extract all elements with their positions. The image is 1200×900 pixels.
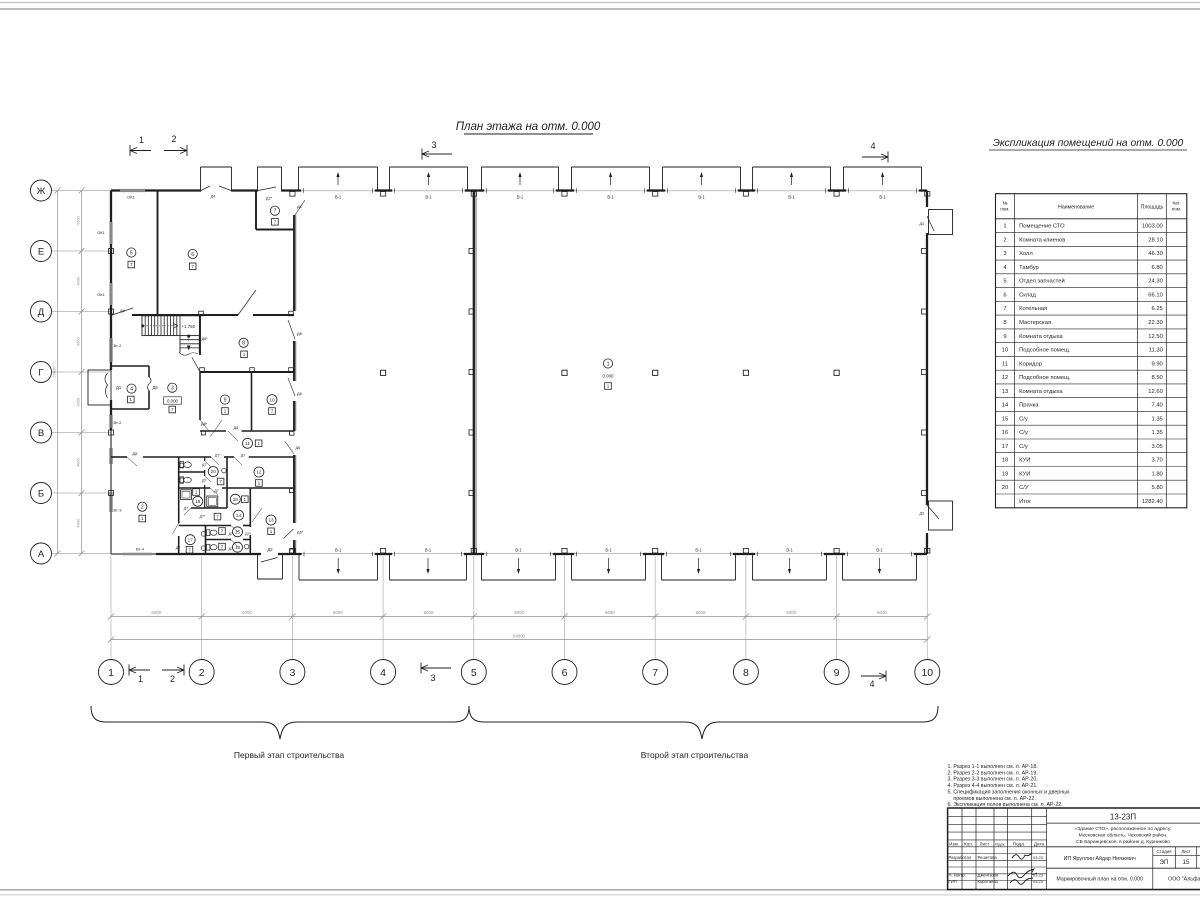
svg-text:54000: 54000	[513, 634, 526, 639]
svg-text:В-1: В-1	[879, 195, 886, 200]
svg-text:Комната отдыха: Комната отдыха	[1019, 334, 1063, 340]
svg-text:Д8: Д8	[133, 452, 138, 456]
svg-text:6. Экспликация полов выполнена: 6. Экспликация полов выполнена см. л. АР…	[948, 802, 1063, 808]
svg-text:Котельная: Котельная	[1019, 306, 1047, 312]
svg-text:4: 4	[869, 679, 874, 689]
svg-text:2: 2	[141, 505, 144, 511]
svg-text:Маркировочный план на отм. 0.0: Маркировочный план на отм. 0.000	[1056, 876, 1143, 883]
svg-text:17: 17	[188, 537, 194, 542]
svg-text:Д7: Д7	[214, 489, 218, 493]
svg-text:Н. контр.: Н. контр.	[949, 873, 966, 878]
svg-text:03.23: 03.23	[1033, 879, 1044, 884]
svg-text:2. Разрез 2-2 выполнен см. л.: 2. Разрез 2-2 выполнен см. л. АР-19.	[948, 770, 1038, 776]
svg-text:4000: 4000	[76, 216, 81, 226]
svg-text:6000: 6000	[424, 610, 434, 615]
svg-text:4: 4	[870, 141, 875, 151]
svg-text:3: 3	[171, 386, 174, 392]
svg-text:6000: 6000	[605, 610, 615, 615]
svg-text:7: 7	[171, 407, 174, 412]
svg-text:1: 1	[243, 352, 246, 357]
svg-text:1: 1	[138, 674, 143, 684]
svg-text:3.05: 3.05	[1152, 444, 1163, 450]
svg-text:4: 4	[130, 387, 133, 393]
svg-text:12.50: 12.50	[1148, 334, 1163, 340]
svg-text:Вт-2: Вт-2	[114, 420, 123, 425]
svg-text:2: 2	[1003, 237, 1006, 243]
svg-text:6: 6	[562, 667, 568, 679]
svg-text:9: 9	[834, 667, 840, 679]
svg-text:66.10: 66.10	[1148, 293, 1163, 299]
svg-text:Д7: Д7	[184, 507, 188, 511]
svg-text:В-1: В-1	[335, 547, 342, 552]
svg-text:Первый этап строительства: Первый этап строительства	[234, 750, 344, 760]
svg-text:Д7: Д7	[202, 479, 206, 483]
svg-text:ГИП: ГИП	[949, 879, 957, 884]
svg-text:17: 17	[1002, 444, 1008, 450]
svg-text:7: 7	[221, 529, 224, 534]
svg-text:16: 16	[1002, 430, 1008, 436]
svg-text:7: 7	[130, 262, 133, 267]
svg-text:5: 5	[471, 667, 477, 679]
svg-text:С/у: С/у	[1019, 444, 1028, 450]
svg-text:Д7*: Д7*	[245, 532, 251, 536]
svg-text:ЭП: ЭП	[1160, 859, 1169, 866]
svg-text:4000: 4000	[76, 458, 81, 468]
svg-text:Разработал: Разработал	[949, 855, 972, 860]
svg-text:В: В	[38, 428, 44, 439]
svg-text:№: №	[1003, 201, 1008, 206]
svg-text:Д1: Д1	[116, 385, 122, 390]
svg-text:3: 3	[289, 667, 295, 679]
svg-text:4000: 4000	[76, 518, 81, 528]
svg-text:В-1: В-1	[335, 195, 342, 200]
svg-text:20: 20	[1002, 485, 1008, 491]
svg-text:Е: Е	[38, 246, 44, 257]
svg-text:5: 5	[130, 250, 133, 256]
svg-text:5. Спецификация заполнения око: 5. Спецификация заполнения оконных и две…	[948, 789, 1070, 795]
svg-text:ОК1: ОК1	[97, 292, 105, 297]
svg-text:Прачка: Прачка	[1019, 403, 1039, 409]
svg-text:1: 1	[139, 135, 144, 145]
svg-text:9: 9	[224, 398, 227, 404]
svg-text:Д7*: Д7*	[200, 514, 206, 518]
svg-text:Коридор: Коридор	[1019, 361, 1042, 367]
svg-text:Дата: Дата	[1034, 841, 1045, 846]
svg-text:Д7*: Д7*	[215, 454, 221, 458]
svg-text:Д8: Д8	[120, 309, 125, 313]
svg-text:6000: 6000	[333, 610, 343, 615]
svg-text:С/у: С/у	[1019, 416, 1028, 422]
svg-text:13-23П: 13-23П	[1110, 813, 1136, 822]
svg-text:1: 1	[130, 397, 133, 402]
svg-text:Кол.: Кол.	[964, 841, 973, 846]
svg-text:1: 1	[1003, 224, 1006, 230]
svg-text:Б: Б	[38, 488, 44, 499]
svg-text:Д6*: Д6*	[297, 531, 304, 535]
svg-text:4: 4	[380, 667, 386, 679]
svg-text:20: 20	[211, 469, 217, 474]
svg-text:1: 1	[257, 441, 260, 446]
svg-text:10: 10	[1002, 348, 1008, 354]
svg-text:Джентазов: Джентазов	[978, 873, 1000, 878]
svg-text:6000: 6000	[242, 610, 252, 615]
svg-text:1.35: 1.35	[1152, 416, 1163, 422]
svg-text:1003.00: 1003.00	[1142, 224, 1163, 230]
svg-text:ОК1: ОК1	[127, 195, 135, 200]
svg-text:Второй этап строительства: Второй этап строительства	[641, 750, 749, 760]
svg-text:6: 6	[191, 252, 194, 258]
svg-text:7: 7	[191, 264, 194, 269]
svg-text:15: 15	[1002, 416, 1008, 422]
svg-text:Решетова: Решетова	[978, 855, 998, 860]
svg-text:Д2*: Д2*	[266, 196, 273, 200]
svg-text:Д8: Д8	[234, 426, 239, 430]
svg-text:В-1: В-1	[698, 195, 705, 200]
svg-text:Тамбур: Тамбур	[1019, 265, 1039, 271]
svg-text:14: 14	[236, 513, 242, 518]
svg-text:4000: 4000	[76, 276, 81, 286]
svg-text:ОК1: ОК1	[97, 230, 105, 235]
svg-text:Кат.: Кат.	[1172, 201, 1180, 206]
svg-text:6000: 6000	[696, 610, 706, 615]
svg-text:Д7: Д7	[228, 532, 232, 536]
svg-text:1: 1	[224, 409, 227, 414]
svg-text:9: 9	[1003, 334, 1006, 340]
svg-text:В-1: В-1	[425, 547, 432, 552]
svg-text:1: 1	[108, 667, 114, 679]
svg-text:КУИ: КУИ	[1019, 471, 1030, 477]
svg-text:7.40: 7.40	[1152, 403, 1163, 409]
svg-text:1.80: 1.80	[1152, 471, 1163, 477]
svg-text:Ж: Ж	[37, 186, 46, 197]
svg-text:14: 14	[1002, 403, 1009, 409]
svg-text:6000: 6000	[514, 610, 524, 615]
svg-text:В-1: В-1	[515, 547, 522, 552]
svg-text:8: 8	[1003, 320, 1006, 326]
svg-text:8: 8	[242, 341, 245, 347]
svg-text:Лист: Лист	[980, 841, 991, 846]
svg-text:5: 5	[1003, 279, 1006, 285]
svg-text:проемов выполнена см. л. АР-22: проемов выполнена см. л. АР-22.	[948, 796, 1036, 802]
svg-text:ООО "Альфа: ООО "Альфа	[1168, 877, 1200, 883]
svg-text:11: 11	[1002, 361, 1008, 367]
svg-text:В-1: В-1	[425, 195, 432, 200]
svg-text:пом.: пом.	[1000, 207, 1009, 212]
svg-text:1.35: 1.35	[1152, 430, 1163, 436]
svg-text:Комната отдыха: Комната отдыха	[1019, 389, 1063, 395]
svg-text:12: 12	[256, 470, 262, 475]
svg-text:Д: Д	[38, 307, 45, 318]
svg-text:5.80: 5.80	[1152, 485, 1163, 491]
svg-text:7: 7	[273, 209, 276, 215]
svg-text:Склад: Склад	[1019, 293, 1036, 299]
svg-text:1. Разрез 1-1 выполнен см. л.: 1. Разрез 1-1 выполнен см. л. АР-18.	[948, 764, 1038, 770]
svg-text:Д8: Д8	[297, 392, 302, 396]
svg-text:3.70: 3.70	[1152, 458, 1163, 464]
svg-text:Площадь: Площадь	[1141, 204, 1164, 210]
svg-text:Д3: Д3	[919, 222, 924, 226]
svg-text:В-1: В-1	[605, 547, 612, 552]
svg-text:6.25: 6.25	[1152, 306, 1163, 312]
svg-text:Д4: Д4	[211, 195, 216, 199]
svg-text:С/у: С/у	[1019, 430, 1028, 436]
svg-text:2: 2	[171, 134, 176, 144]
svg-text:1: 1	[258, 481, 261, 486]
svg-text:Подл.: Подл.	[1013, 841, 1025, 846]
svg-text:11: 11	[245, 441, 250, 446]
svg-text:1: 1	[195, 490, 198, 495]
svg-text:4. Разрез 4-4 выполнен см. л.: 4. Разрез 4-4 выполнен см. л. АР-21.	[948, 783, 1038, 789]
svg-text:15: 15	[1183, 859, 1190, 866]
svg-text:Комната клиенов: Комната клиенов	[1019, 237, 1065, 243]
svg-text:Наименование: Наименование	[1058, 204, 1094, 210]
svg-text:В-1: В-1	[786, 547, 793, 552]
svg-text:24000: 24000	[52, 366, 57, 378]
svg-text:6000: 6000	[877, 610, 887, 615]
svg-text:19: 19	[233, 497, 239, 502]
svg-text:Стадия: Стадия	[1157, 849, 1173, 854]
svg-text:6.80: 6.80	[1152, 265, 1163, 271]
svg-text:Лист: Лист	[1181, 849, 1191, 854]
svg-text:1: 1	[607, 384, 610, 389]
svg-text:18: 18	[1002, 458, 1008, 464]
svg-text:3. Разрез 3-3 выполнен см. л.: 3. Разрез 3-3 выполнен см. л. АР-20.	[948, 777, 1038, 783]
svg-text:С/У: С/У	[1019, 485, 1029, 491]
svg-text:Подсобное помещ.: Подсобное помещ.	[1019, 375, 1071, 381]
svg-text:1282.40: 1282.40	[1142, 499, 1163, 505]
svg-text:7: 7	[219, 479, 222, 484]
svg-text:0.000: 0.000	[603, 374, 615, 379]
svg-text:Итог: Итог	[1019, 499, 1031, 505]
svg-text:13: 13	[1002, 389, 1008, 395]
svg-text:План этажа на отм. 0.000: План этажа на отм. 0.000	[456, 121, 601, 133]
svg-text:18: 18	[195, 499, 201, 504]
svg-text:Д7: Д7	[176, 546, 180, 550]
svg-text:03.23: 03.23	[1033, 855, 1044, 860]
svg-text:7: 7	[216, 514, 219, 519]
svg-text:0.000: 0.000	[167, 399, 179, 404]
svg-text:Д7: Д7	[228, 547, 232, 551]
svg-text:9.90: 9.90	[1152, 361, 1163, 367]
svg-text:Д7: Д7	[241, 454, 245, 458]
svg-text:8: 8	[743, 667, 749, 679]
svg-text:ИП Яруллин Айдар Ниязович: ИП Яруллин Айдар Ниязович	[1064, 855, 1136, 862]
svg-text:Подсобное помещ.: Подсобное помещ.	[1019, 348, 1071, 354]
svg-text:11.30: 11.30	[1149, 348, 1163, 354]
svg-text:Вт-4: Вт-4	[136, 547, 145, 552]
svg-text:Мдок.: Мдок.	[995, 842, 1005, 846]
svg-text:Изм.: Изм.	[949, 841, 959, 846]
svg-text:46.30: 46.30	[1148, 251, 1163, 257]
svg-text:КУИ: КУИ	[1019, 458, 1030, 464]
svg-text:1: 1	[607, 361, 610, 367]
svg-text:1: 1	[141, 516, 144, 521]
svg-text:Д7: Д7	[202, 463, 206, 467]
svg-text:«Здание СТО», расположенное по: «Здание СТО», расположенное по адресу:	[1074, 826, 1171, 832]
svg-text:8.50: 8.50	[1152, 375, 1163, 381]
svg-text:Д6: Д6	[296, 446, 301, 450]
svg-text:7: 7	[188, 548, 191, 553]
svg-text:Коротаева: Коротаева	[978, 879, 999, 884]
svg-text:Д8: Д8	[297, 332, 302, 336]
svg-text:4000: 4000	[76, 397, 81, 407]
svg-text:Экспликация помещений на отм.: Экспликация помещений на отм. 0.000	[993, 138, 1184, 149]
svg-text:7: 7	[1003, 306, 1006, 312]
svg-text:10: 10	[921, 667, 933, 679]
svg-text:24.30: 24.30	[1148, 279, 1163, 285]
svg-text:1: 1	[270, 529, 273, 534]
svg-text:6000: 6000	[786, 610, 796, 615]
svg-text:6000: 6000	[151, 610, 161, 615]
svg-text:Вт-3: Вт-3	[114, 508, 123, 513]
svg-text:2: 2	[199, 667, 205, 679]
svg-text:16: 16	[235, 545, 241, 550]
svg-text:В-1: В-1	[695, 547, 702, 552]
svg-text:В-1: В-1	[607, 195, 614, 200]
svg-text:Д8*: Д8*	[202, 337, 209, 341]
svg-text:10: 10	[269, 397, 275, 402]
svg-text:12.60: 12.60	[1148, 389, 1163, 395]
svg-text:12: 12	[1002, 375, 1008, 381]
svg-text:7: 7	[652, 667, 658, 679]
svg-text:Г: Г	[38, 367, 43, 378]
svg-text:3: 3	[1003, 251, 1006, 257]
svg-text:1: 1	[244, 497, 247, 502]
svg-text:19: 19	[1002, 471, 1008, 477]
svg-text:Холл: Холл	[1019, 251, 1033, 257]
svg-text:28.10: 28.10	[1148, 237, 1163, 243]
svg-text:3: 3	[431, 140, 436, 150]
svg-text:Д8*: Д8*	[201, 422, 208, 426]
svg-text:Вт-2: Вт-2	[114, 343, 123, 348]
svg-text:Д5: Д5	[153, 385, 159, 390]
svg-text:Помещение СТО: Помещение СТО	[1019, 224, 1065, 230]
svg-text:03.23: 03.23	[1033, 873, 1044, 878]
svg-text:В-1: В-1	[788, 195, 795, 200]
svg-text:7: 7	[274, 220, 277, 225]
svg-text:Д3: Д3	[919, 512, 924, 516]
svg-text:22.30: 22.30	[1148, 320, 1163, 326]
svg-text:13: 13	[268, 518, 274, 523]
svg-text:7: 7	[221, 544, 224, 549]
svg-text:пом.: пом.	[1172, 207, 1181, 212]
svg-text:+1.760: +1.760	[182, 324, 196, 329]
svg-text:В-1: В-1	[517, 195, 524, 200]
svg-text:А: А	[38, 549, 45, 560]
svg-text:Мастерская: Мастерская	[1019, 320, 1051, 326]
svg-text:7: 7	[271, 409, 274, 414]
svg-text:2: 2	[170, 674, 175, 684]
svg-text:15: 15	[235, 530, 241, 535]
svg-text:Отдел запчастей: Отдел запчастей	[1019, 278, 1065, 285]
svg-text:6: 6	[1003, 293, 1006, 299]
svg-text:3: 3	[430, 673, 435, 683]
svg-text:В-1: В-1	[876, 547, 883, 552]
svg-text:Д2: Д2	[267, 547, 273, 552]
svg-text:4000: 4000	[76, 337, 81, 347]
